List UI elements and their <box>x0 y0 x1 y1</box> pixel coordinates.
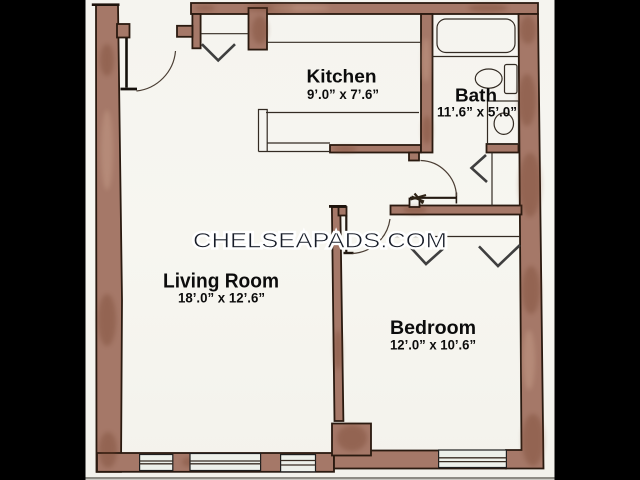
svg-text:11’.6” x 5’.0”: 11’.6” x 5’.0” <box>437 104 517 120</box>
svg-text:Bath: Bath <box>455 84 497 105</box>
svg-text:Bedroom: Bedroom <box>390 318 476 339</box>
svg-text:Living Room: Living Room <box>163 271 279 293</box>
svg-text:12’.0” x 10’.6”: 12’.0” x 10’.6” <box>390 337 476 353</box>
svg-text:Kitchen: Kitchen <box>307 66 377 87</box>
svg-text:9’.0” x 7’.6”: 9’.0” x 7’.6” <box>307 86 379 102</box>
svg-text:CHELSEAPADS.COM: CHELSEAPADS.COM <box>193 229 447 253</box>
svg-text:18’.0” x 12’.6”: 18’.0” x 12’.6” <box>178 291 265 306</box>
